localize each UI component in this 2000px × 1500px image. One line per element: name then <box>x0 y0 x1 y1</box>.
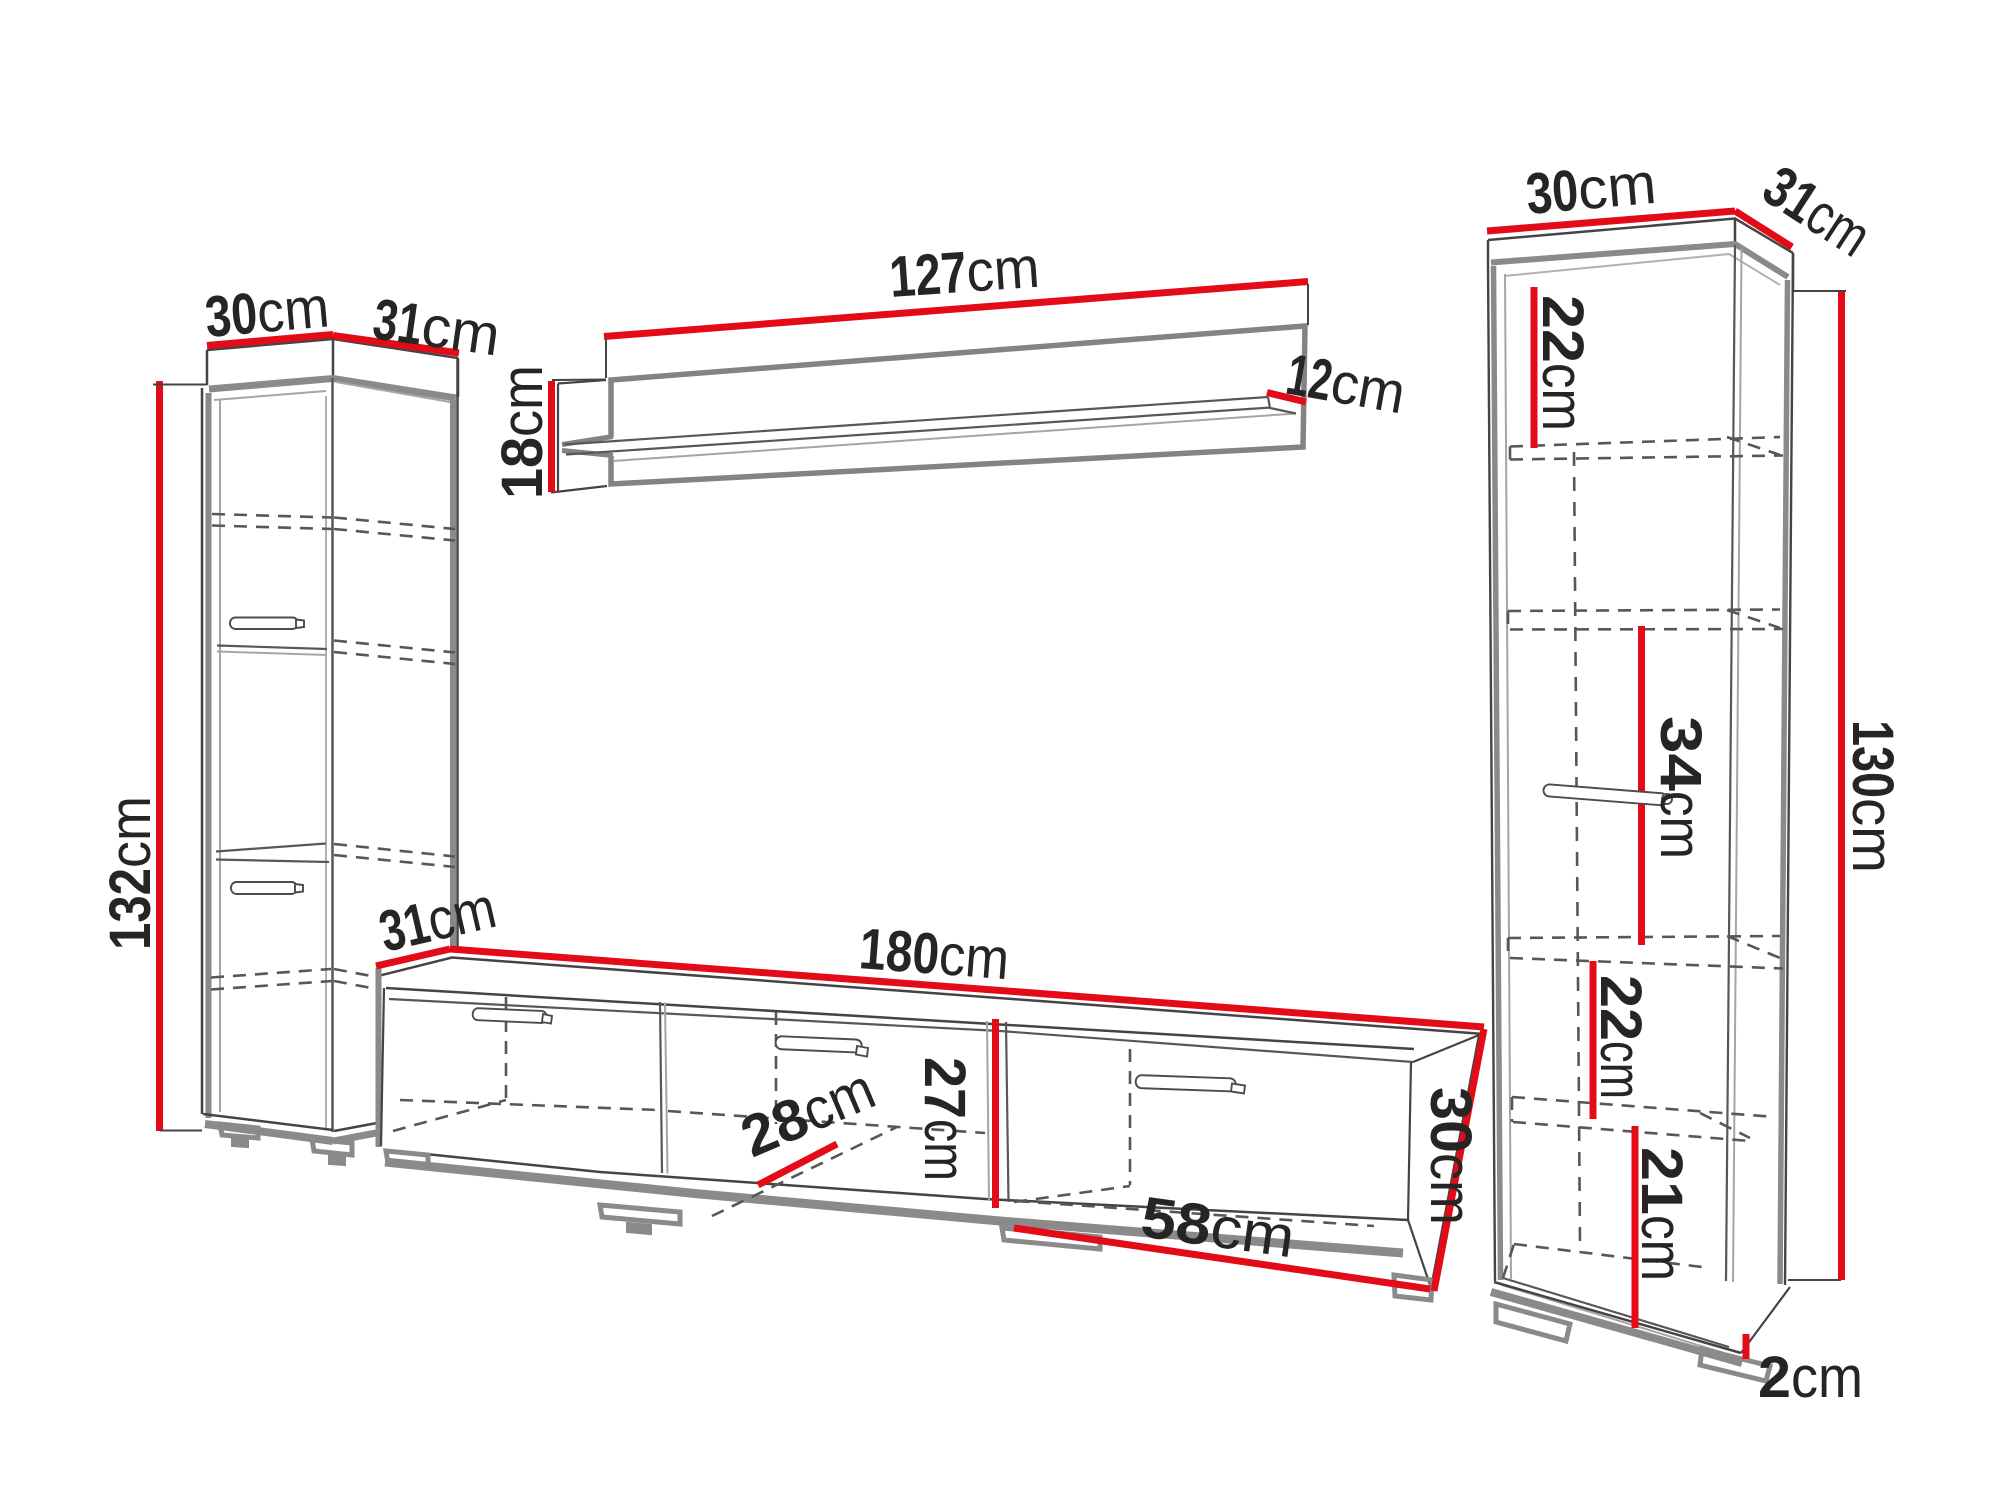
svg-text:30cm: 30cm <box>202 274 331 350</box>
svg-text:180cm: 180cm <box>857 916 1011 992</box>
svg-text:30cm: 30cm <box>1418 1087 1483 1225</box>
svg-text:22cm: 22cm <box>1588 975 1653 1099</box>
svg-text:127cm: 127cm <box>887 235 1041 310</box>
svg-text:2cm: 2cm <box>1758 1345 1863 1410</box>
svg-text:22cm: 22cm <box>1530 295 1595 431</box>
svg-text:21cm: 21cm <box>1629 1147 1694 1281</box>
svg-text:27cm: 27cm <box>912 1057 977 1181</box>
svg-text:132cm: 132cm <box>98 796 163 950</box>
svg-text:34cm: 34cm <box>1648 716 1713 859</box>
svg-text:18cm: 18cm <box>490 365 555 499</box>
svg-text:30cm: 30cm <box>1523 151 1658 227</box>
svg-text:130cm: 130cm <box>1840 720 1905 873</box>
